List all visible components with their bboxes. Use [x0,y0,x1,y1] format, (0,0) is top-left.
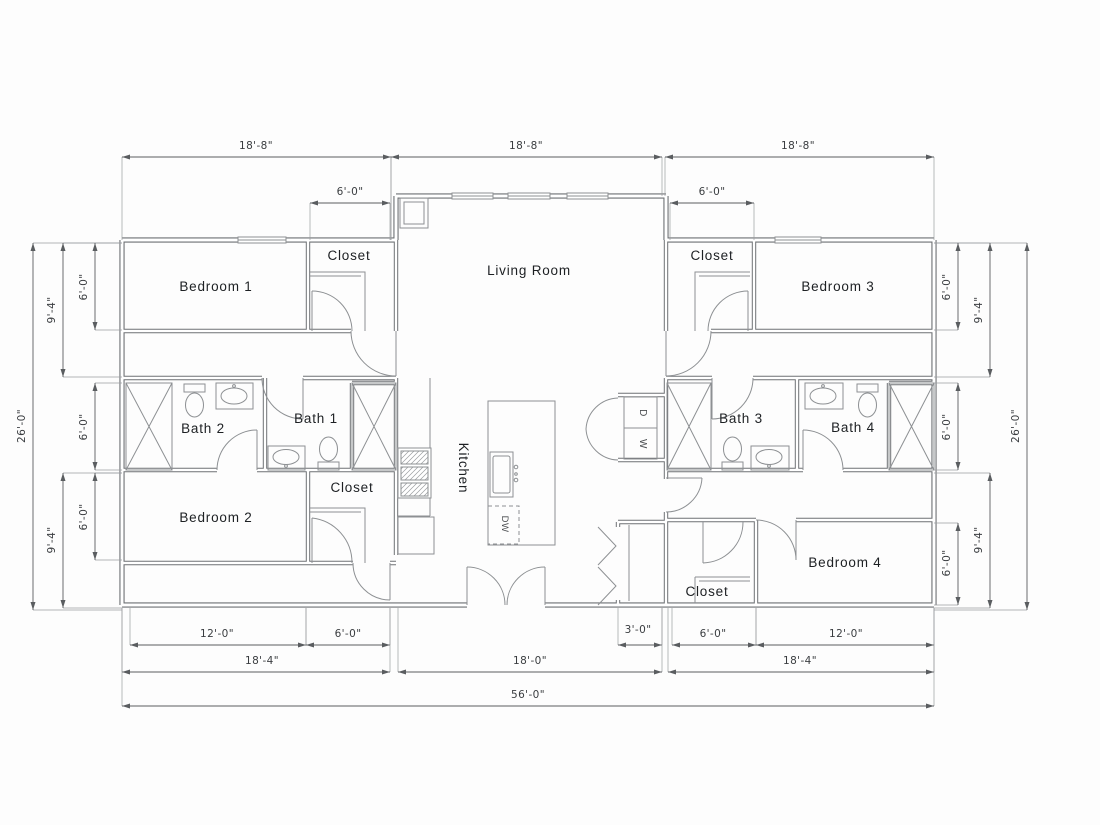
dimension-bedroom2-width: 12'-0" [130,608,306,648]
dimension-label-closet2-width: 6'-0" [335,628,362,640]
dimension-label-bedroom4-width: 12'-0" [829,628,863,640]
dimension-left-94-bottom: 9'-4" [46,473,122,608]
island-sink-icon [490,452,518,497]
dimension-label-closet1-width: 6'-0" [337,186,364,198]
room-label-bedroom-3: Bedroom 3 [801,279,874,294]
dimension-label-right-60-top: 6'-0" [941,274,953,301]
dimension-label-center-width: 18'-0" [513,655,547,667]
floor-plan-canvas: 18'-8"18'-8"18'-8"6'-0"6'-0"12'-0"6'-0"3… [0,0,1100,825]
dimension-left-overall: 26'-0" [16,243,122,610]
bedroom1-door [351,331,396,376]
dimension-label-left-94-bottom: 9'-4" [46,527,58,554]
room-label-bedroom-4: Bedroom 4 [808,555,881,570]
laundry-unit [624,397,657,459]
living-room-window-icon [452,193,608,199]
dimension-closet2-width: 6'-0" [306,608,390,648]
dimension-label-left-94-top: 9'-4" [46,297,58,324]
dimension-closet3-width: 6'-0" [670,186,754,240]
dimension-left-60-mid: 6'-0" [78,383,122,470]
room-label-closet-bedroom-4: Closet [685,584,728,599]
room-label-bedroom-2: Bedroom 2 [179,510,252,525]
closet3-door [708,291,748,331]
dimension-label-left-60-mid: 6'-0" [78,414,90,441]
dimension-label-pantry-width: 3'-0" [625,624,652,636]
windows [238,193,821,243]
interior-walls [122,240,934,605]
dimension-label-right-wing-width: 18'-4" [783,655,817,667]
room-labels: Bedroom 1ClosetLiving RoomClosetBedroom … [179,248,881,599]
floor-plan-drawing: 18'-8"18'-8"18'-8"6'-0"6'-0"12'-0"6'-0"3… [0,0,1100,825]
bedroom3-door [666,331,711,376]
appliance-label-dryer: D [637,409,648,417]
dimension-right-wing-width: 18'-4" [668,608,934,675]
bath1-shower [352,383,396,470]
doors [217,291,843,605]
bath1-toilet-icon [318,437,339,470]
bath4-tub [889,383,934,470]
dimension-left-60-top: 6'-0" [78,243,122,330]
dimension-label-top-center: 18'-8" [509,140,543,152]
room-label-kitchen: Kitchen [456,443,471,494]
dimension-label-left-60-bottom: 6'-0" [78,504,90,531]
dimension-label-closet3-width: 6'-0" [699,186,726,198]
room-label-living-room: Living Room [487,263,571,278]
kitchen-island [488,401,555,545]
bath1-sink-icon [268,446,305,470]
bath2-tub [126,383,172,470]
dimension-right-94-top: 9'-4" [934,243,993,377]
bedroom4-door [756,520,796,560]
dimension-label-overall-width: 56'-0" [511,689,545,701]
bath2-door [217,430,257,470]
entry-double-door [467,567,545,605]
room-label-bedroom-1: Bedroom 1 [179,279,252,294]
dimension-left-wing-width: 18'-4" [122,608,390,675]
dimension-label-left-60-top: 6'-0" [78,274,90,301]
dimension-closet1-width: 6'-0" [310,186,390,240]
dimension-annotations: 18'-8"18'-8"18'-8"6'-0"6'-0"12'-0"6'-0"3… [16,140,1030,709]
dimension-label-right-60-bottom: 6'-0" [941,550,953,577]
room-label-bath-2: Bath 2 [181,421,225,436]
appliance-label-dishwasher: DW [499,516,510,533]
dimension-label-right-94-top: 9'-4" [973,297,985,324]
dimension-right-94-bottom: 9'-4" [934,473,993,608]
dimension-label-top-right-wing: 18'-8" [781,140,815,152]
bedroom2-door [353,563,390,600]
pantry-bifold-door [598,527,616,605]
closet4-door [703,522,743,563]
appliance-label-washer: W [637,439,648,449]
room-label-bath-3: Bath 3 [719,411,763,426]
range-icon [398,448,431,498]
flue-box [400,198,428,228]
bedroom3-window-icon [775,237,821,243]
dimension-pantry-width: 3'-0" [618,608,662,648]
dimension-left-60-bottom: 6'-0" [78,473,122,560]
hall-door-right [666,478,702,512]
bath3-shower [667,383,711,470]
dimension-right-60-bottom: 6'-0" [934,523,961,605]
dimension-right-60-top: 6'-0" [934,243,961,330]
dimension-center-width: 18'-0" [398,608,662,675]
laundry-bifold-door [586,398,618,460]
bedroom1-window-icon [238,237,286,243]
dimension-top-center: 18'-8" [391,140,662,240]
bath3-toilet-icon [722,437,743,470]
dimension-label-left-overall: 26'-0" [16,409,28,443]
fixtures [126,198,934,603]
dimension-label-right-overall: 26'-0" [1010,409,1022,443]
bath2-toilet-icon [184,384,205,417]
room-label-closet-bedroom-3: Closet [690,248,733,263]
room-label-bath-4: Bath 4 [831,420,875,435]
dimension-label-bedroom2-width: 12'-0" [200,628,234,640]
bath4-toilet-icon [857,384,878,417]
closet1-door [312,291,352,331]
dimension-left-94-top: 9'-4" [46,243,122,377]
dimension-label-right-94-bottom: 9'-4" [973,527,985,554]
dimension-label-top-left-wing: 18'-8" [239,140,273,152]
dimension-label-right-60-mid: 6'-0" [941,414,953,441]
room-label-closet-bedroom-1: Closet [327,248,370,263]
room-label-closet-bedroom-2: Closet [330,480,373,495]
bath4-sink-icon [805,383,843,409]
fridge-icon [398,517,434,554]
dimension-closet4-width: 6'-0" [672,608,756,648]
room-label-bath-1: Bath 1 [294,411,338,426]
bath4-door [803,430,843,470]
closet2-door [312,518,352,563]
closet-shelves [310,272,750,603]
dimension-right-60-mid: 6'-0" [934,383,961,470]
bath3-sink-icon [751,446,789,470]
dimension-bedroom4-width: 12'-0" [756,608,934,648]
dimension-label-left-wing-width: 18'-4" [245,655,279,667]
bath2-sink-icon [216,383,253,409]
dimension-label-closet4-width: 6'-0" [700,628,727,640]
